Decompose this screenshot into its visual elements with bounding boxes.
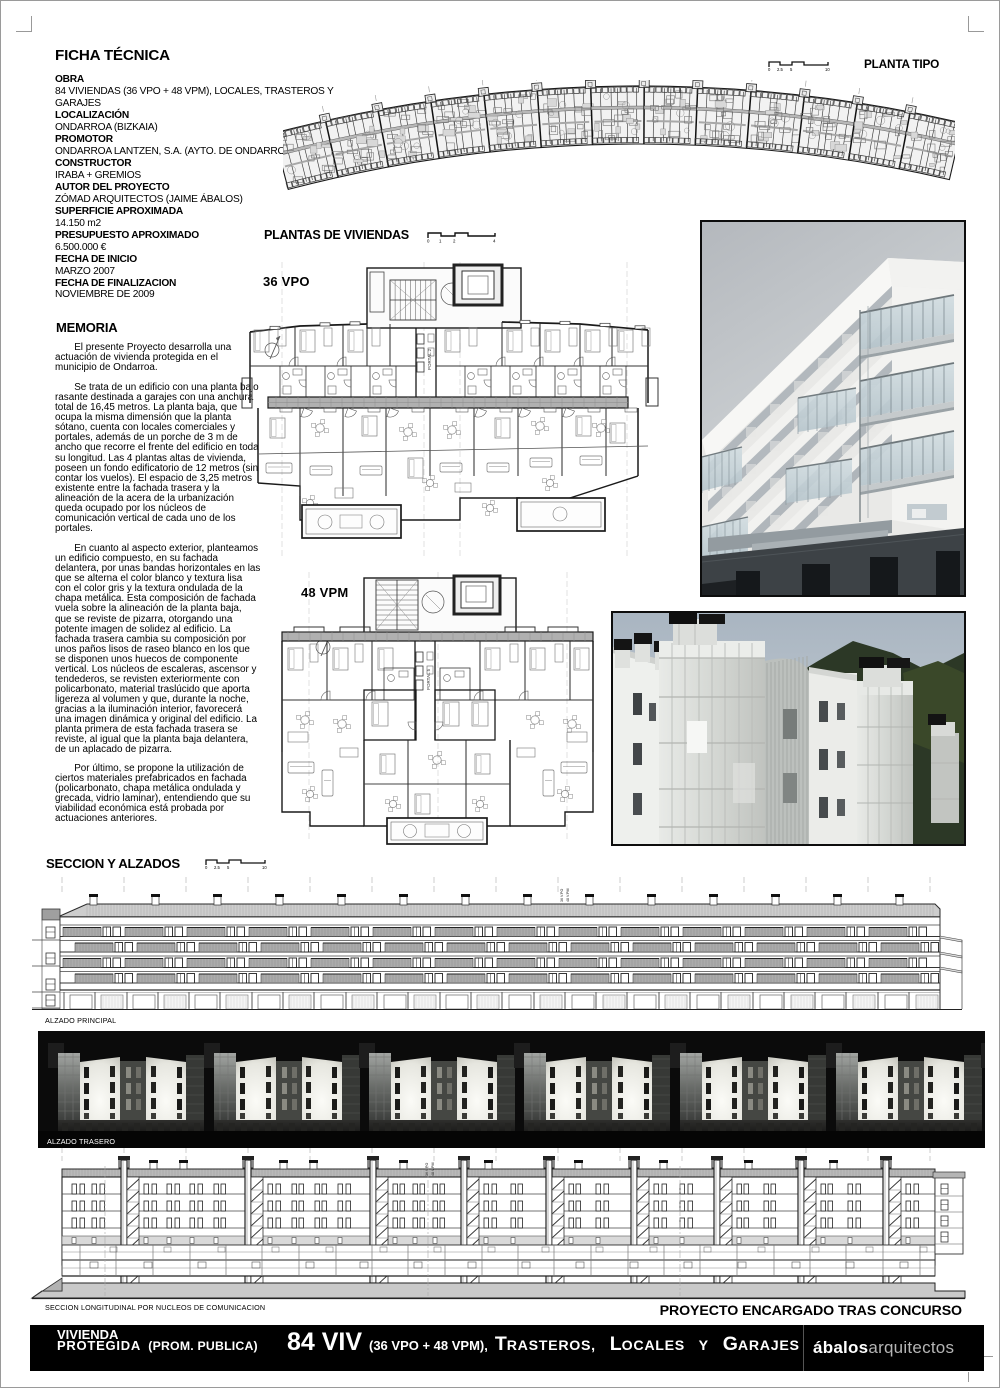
svg-text:1: 1 <box>439 239 442 244</box>
svg-text:2: 2 <box>453 239 456 244</box>
svg-text:2.5: 2.5 <box>777 67 783 72</box>
svg-text:5: 5 <box>227 865 230 870</box>
svg-text:2.5: 2.5 <box>214 865 220 870</box>
svg-text:10: 10 <box>825 67 830 72</box>
svg-text:PORTAL 5: PORTAL 5 <box>426 668 431 690</box>
svg-text:36 V.PO: 36 V.PO <box>425 1163 429 1176</box>
svg-text:0: 0 <box>768 67 771 72</box>
svg-text:36 V.PO: 36 V.PO <box>560 889 564 902</box>
svg-text:48 V.PM: 48 V.PM <box>566 889 570 902</box>
svg-text:48 V.PM: 48 V.PM <box>431 1163 435 1176</box>
svg-text:10: 10 <box>262 865 267 870</box>
svg-text:PORTAL 2: PORTAL 2 <box>427 348 432 370</box>
svg-text:5: 5 <box>790 67 793 72</box>
svg-text:4: 4 <box>493 239 496 244</box>
svg-text:0: 0 <box>427 239 430 244</box>
svg-text:0: 0 <box>205 865 208 870</box>
